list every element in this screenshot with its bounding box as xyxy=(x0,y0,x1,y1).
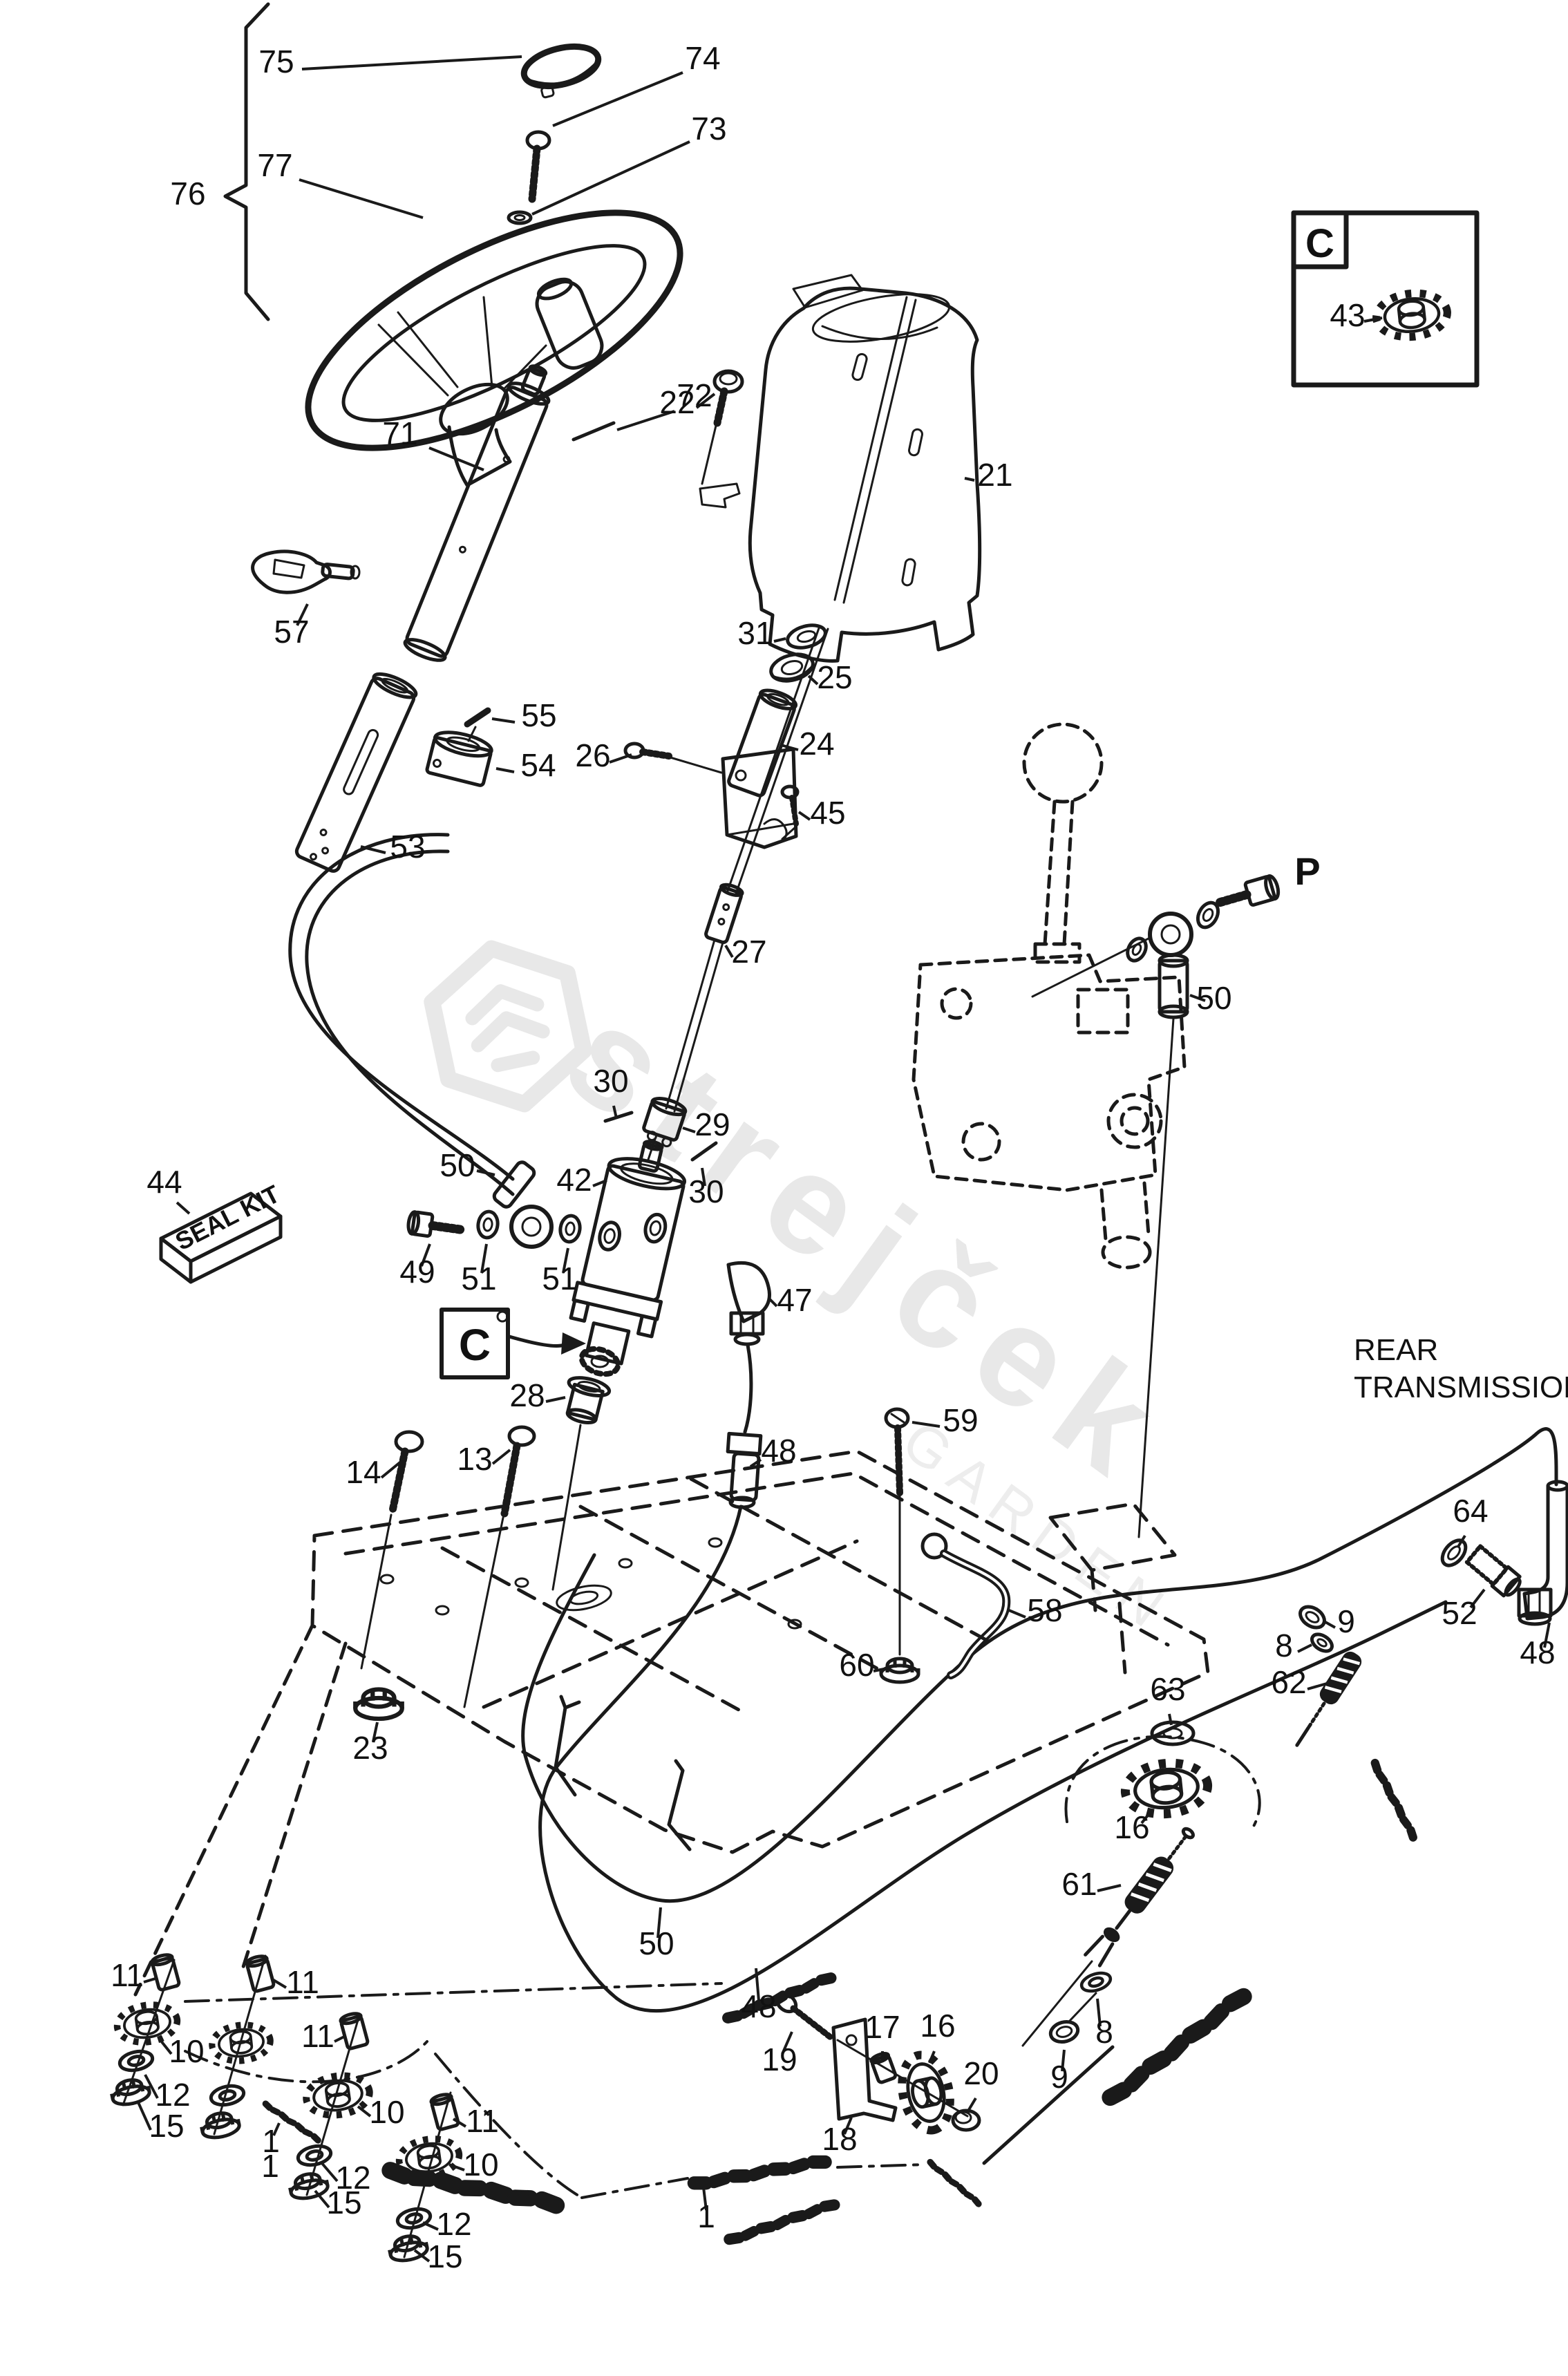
axle-assembly-2 xyxy=(200,1954,274,2140)
banjo-eye-50 xyxy=(492,1160,551,1247)
part-label-62: 62 xyxy=(1271,1664,1306,1700)
part-label-14: 14 xyxy=(346,1454,381,1490)
part-label-23: 23 xyxy=(352,1730,388,1766)
drive-chains xyxy=(260,1756,1421,2249)
leader-line-9 xyxy=(1324,1621,1335,1628)
part-label-48: 48 xyxy=(761,1433,796,1469)
banjo-washer-51a xyxy=(476,1210,499,1239)
part-label-18: 18 xyxy=(822,2121,857,2157)
part-label-75: 75 xyxy=(258,44,294,79)
part-label-10: 10 xyxy=(369,2094,404,2130)
tie-line xyxy=(1032,939,1149,997)
leader-line-58 xyxy=(1009,1610,1026,1617)
part-label-63: 63 xyxy=(1150,1671,1185,1707)
collar-pin xyxy=(467,710,488,741)
ignition-key xyxy=(253,551,359,592)
part-label-48: 48 xyxy=(1520,1634,1555,1670)
frame-nut-23 xyxy=(355,1690,402,1719)
detail-box-letter: C xyxy=(1305,221,1334,266)
part-label-21: 21 xyxy=(977,457,1012,493)
part-label-22: 22 xyxy=(659,384,695,420)
leader-line-55 xyxy=(492,719,515,722)
frame-holes xyxy=(381,1538,801,1628)
part-label-47: 47 xyxy=(777,1282,812,1318)
leader-line-13 xyxy=(493,1450,510,1464)
wire-bracket-58 xyxy=(923,1534,1006,1675)
rear-hose-end xyxy=(1519,1482,1567,1624)
part-label-77: 77 xyxy=(257,147,292,183)
part-label-P: P xyxy=(1294,849,1320,893)
parts-diagram: strejček GARDEN xyxy=(0,0,1568,2376)
roll-pin-72 xyxy=(574,423,614,440)
part-label-11: 11 xyxy=(111,1957,144,1993)
part-label-15: 15 xyxy=(149,2108,184,2144)
part-label-43: 43 xyxy=(1330,297,1365,333)
part-label-71: 71 xyxy=(382,415,417,451)
part-label-10: 10 xyxy=(463,2147,498,2182)
shaft-bushing-28 xyxy=(560,1375,611,1427)
shaft-axis-lower xyxy=(553,1425,580,1590)
banjo-washer-51b xyxy=(558,1214,581,1243)
part-label-50: 50 xyxy=(440,1147,475,1183)
leader-line-45 xyxy=(799,812,810,820)
steering-console xyxy=(750,275,979,661)
part-label-16: 16 xyxy=(1114,1809,1149,1845)
leader-line-44 xyxy=(177,1203,189,1214)
part-label-30: 30 xyxy=(593,1063,628,1099)
part-label-31: 31 xyxy=(737,615,773,651)
part-label-61: 61 xyxy=(1061,1866,1097,1902)
hose-48-crimp xyxy=(728,1345,761,1507)
frame-brackets xyxy=(556,1697,690,1849)
part-label-57: 57 xyxy=(274,614,309,650)
part-label-15: 15 xyxy=(326,2185,361,2221)
part-label-25: 25 xyxy=(817,659,852,695)
part-label-8: 8 xyxy=(1275,1628,1293,1663)
leader-line-31 xyxy=(774,639,786,641)
idler-nut-9 xyxy=(1048,2019,1080,2044)
idler-sprocket-16 xyxy=(896,2050,957,2135)
leader-line-21 xyxy=(965,478,974,480)
part-label-9: 9 xyxy=(1050,2059,1068,2095)
column-collar xyxy=(426,728,493,786)
leader-line-26 xyxy=(610,755,632,762)
chassis-frame xyxy=(312,1451,1208,1852)
cap-washer xyxy=(509,212,531,223)
nut-60 xyxy=(881,1659,918,1682)
part-label-20: 20 xyxy=(963,2055,999,2091)
detail-sprocket-43 xyxy=(1374,290,1449,340)
shift-knob xyxy=(530,273,607,373)
part-label-1: 1 xyxy=(261,2148,279,2184)
part-label-19: 19 xyxy=(762,2042,797,2077)
leader-line-75 xyxy=(302,57,522,69)
leader-line-12 xyxy=(321,2162,337,2181)
chain-path-loop xyxy=(1066,1737,1259,1829)
part-label-16: 16 xyxy=(920,2008,955,2044)
part-label-REAR: REAR xyxy=(1354,1333,1438,1367)
part-label-54: 54 xyxy=(520,747,556,783)
part-label-58: 58 xyxy=(1027,1592,1062,1628)
leader-line-28 xyxy=(546,1397,565,1402)
part-label-10: 10 xyxy=(169,2033,204,2069)
part-label-76: 76 xyxy=(170,176,205,211)
part-label-11: 11 xyxy=(286,1964,319,2000)
idler-washer-8 xyxy=(1079,1970,1113,1995)
leader-line-77 xyxy=(299,180,423,218)
leader-line-54 xyxy=(496,769,514,772)
part-label-55: 55 xyxy=(521,697,556,733)
ball-eye-fitting xyxy=(1150,914,1191,955)
c-callout-letter: C xyxy=(459,1320,491,1370)
leader-line-73 xyxy=(532,142,690,214)
part-label-51: 51 xyxy=(542,1261,577,1297)
part-label-30: 30 xyxy=(688,1173,724,1209)
idler-hw-axis xyxy=(1070,1993,1096,2021)
part-label-44: 44 xyxy=(147,1164,182,1200)
wheel-cap xyxy=(520,39,604,101)
part-label-11: 11 xyxy=(301,2018,334,2054)
part-label-24: 24 xyxy=(799,726,834,762)
rear-washer-64 xyxy=(1438,1536,1471,1570)
part-label-12: 12 xyxy=(436,2206,471,2242)
bracket-bolt-26 xyxy=(625,744,721,773)
idler-cap-20 xyxy=(953,2111,979,2130)
leader-line-61 xyxy=(1097,1885,1121,1891)
part-label-48: 48 xyxy=(741,1988,776,2024)
leader-line-8 xyxy=(1298,1645,1312,1652)
part-label-TRANSMISSION: TRANSMISSION xyxy=(1354,1370,1568,1404)
chain-run-line xyxy=(984,2047,1113,2163)
hydraulic-hose-50-loop-inner xyxy=(307,851,513,1194)
part-label-45: 45 xyxy=(810,795,845,831)
diagram-page: strejček GARDEN xyxy=(0,0,1568,2376)
rear-fitting-52 xyxy=(1466,1545,1524,1599)
part-label-42: 42 xyxy=(556,1162,592,1198)
part-label-53: 53 xyxy=(390,829,425,865)
part-label-1: 1 xyxy=(697,2198,715,2234)
pressure-bolt-P xyxy=(1217,875,1281,914)
part-label-73: 73 xyxy=(691,111,726,147)
steering-wheel xyxy=(275,165,713,495)
part-label-13: 13 xyxy=(457,1441,492,1477)
frame-guide-dashes xyxy=(135,1625,346,1995)
part-label-50: 50 xyxy=(639,1925,674,1961)
part-label-64: 64 xyxy=(1453,1493,1488,1529)
part-label-11: 11 xyxy=(466,2103,499,2139)
part-label-60: 60 xyxy=(839,1647,874,1683)
control-valve-assembly xyxy=(914,724,1184,1267)
upper-steering-column xyxy=(403,359,559,664)
part-label-17: 17 xyxy=(865,2009,900,2045)
part-label-15: 15 xyxy=(427,2238,462,2274)
watermark-brand: strejček xyxy=(539,974,1200,1515)
star-washer xyxy=(578,1344,621,1378)
part-label-8: 8 xyxy=(1095,2014,1113,2050)
part-label-49: 49 xyxy=(399,1254,435,1290)
banjo-bolt-49 xyxy=(407,1211,463,1241)
part-label-51: 51 xyxy=(461,1261,496,1297)
part-label-59: 59 xyxy=(943,1402,978,1438)
part-label-74: 74 xyxy=(685,40,720,76)
part-label-28: 28 xyxy=(509,1377,545,1413)
part-label-52: 52 xyxy=(1442,1595,1477,1631)
washer-8-right xyxy=(1309,1631,1335,1654)
part-label-27: 27 xyxy=(731,934,766,970)
elbow-fitting-47 xyxy=(728,1263,770,1344)
nut-9-right xyxy=(1296,1603,1328,1632)
part-label-29: 29 xyxy=(695,1106,730,1142)
part-label-9: 9 xyxy=(1337,1603,1355,1639)
part-label-26: 26 xyxy=(575,737,610,773)
part-label-50: 50 xyxy=(1196,980,1231,1016)
cap-bolt xyxy=(527,132,549,199)
